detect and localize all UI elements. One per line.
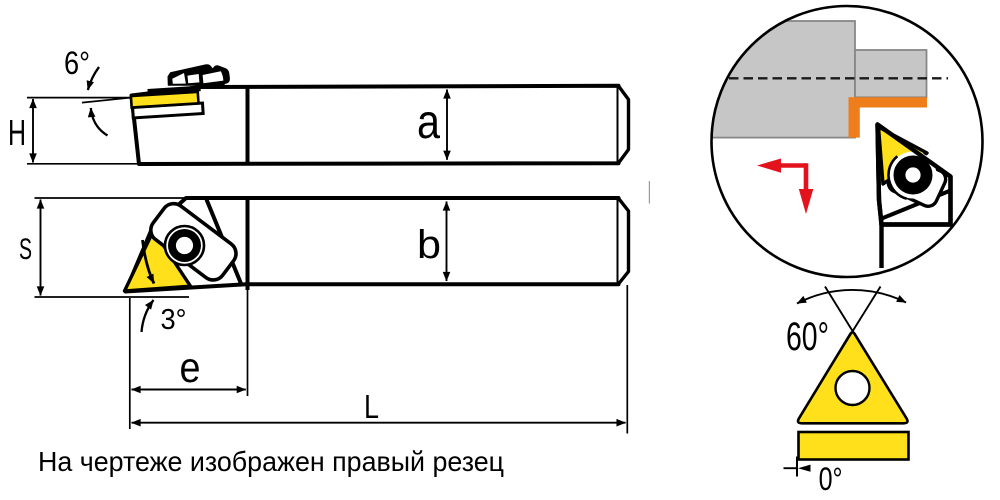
svg-text:60°: 60°: [786, 315, 829, 359]
svg-text:e: e: [180, 344, 201, 392]
svg-text:H: H: [8, 112, 26, 153]
svg-text:3°: 3°: [161, 304, 187, 336]
svg-text:0°: 0°: [819, 461, 843, 497]
svg-text:S: S: [19, 233, 32, 266]
svg-text:a: a: [417, 96, 440, 149]
svg-text:6°: 6°: [64, 45, 90, 81]
svg-text:L: L: [364, 388, 379, 425]
svg-text:b: b: [417, 223, 441, 267]
svg-text:На чертеже изображен правый ре: На чертеже изображен правый резец: [38, 446, 504, 477]
